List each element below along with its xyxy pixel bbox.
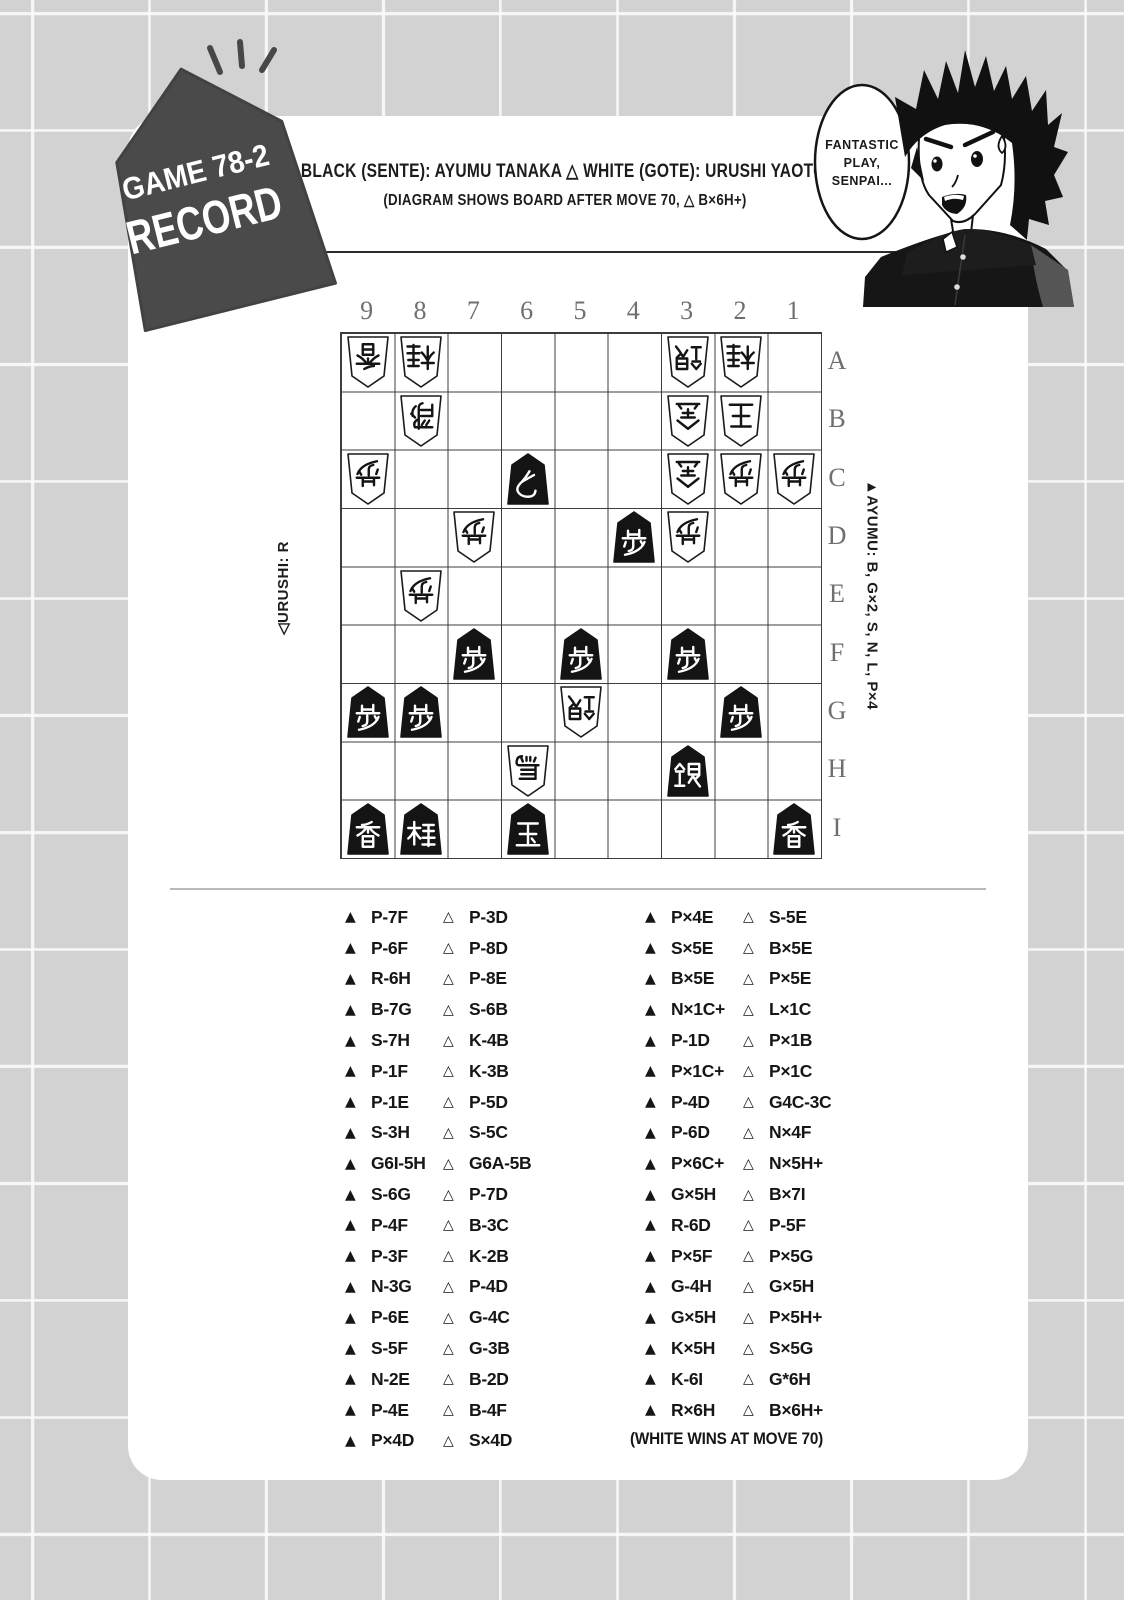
white-triangle-icon: △ bbox=[443, 1094, 469, 1110]
black-move: S-6G bbox=[371, 1184, 443, 1205]
black-triangle-icon: ▲ bbox=[645, 1125, 671, 1141]
white-triangle-icon: △ bbox=[743, 940, 769, 956]
black-triangle-icon: ▲ bbox=[645, 1094, 671, 1110]
left-eye bbox=[932, 157, 943, 172]
black-move: P-4D bbox=[671, 1092, 743, 1113]
piece-black-lance-9I bbox=[344, 802, 392, 856]
piece-white-pawn-2C bbox=[717, 452, 765, 506]
white-move: P×5H+ bbox=[769, 1307, 822, 1328]
white-move: K-3B bbox=[469, 1061, 509, 1082]
file-number-5: 5 bbox=[553, 296, 606, 326]
white-triangle-icon: △ bbox=[743, 1310, 769, 1326]
white-triangle-icon: △ bbox=[743, 1279, 769, 1295]
move-pair-row: ▲K×5H△S×5G bbox=[645, 1333, 831, 1364]
white-move: L×1C bbox=[769, 999, 811, 1020]
black-move: G×5H bbox=[671, 1307, 743, 1328]
move-pair-row: ▲G×5H△P×5H+ bbox=[645, 1302, 831, 1333]
piece-white-pawn-3D bbox=[664, 510, 712, 564]
manga-character-panel: FANTASTIC PLAY, SENPAI... bbox=[805, 25, 1110, 310]
white-move: G-3B bbox=[469, 1338, 510, 1359]
black-triangle-icon: ▲ bbox=[645, 1063, 671, 1079]
white-triangle-icon: △ bbox=[443, 1433, 469, 1449]
white-triangle-icon: △ bbox=[743, 1371, 769, 1387]
black-move: S-7H bbox=[371, 1030, 443, 1051]
black-move: P×6C+ bbox=[671, 1153, 743, 1174]
black-move: N-2E bbox=[371, 1369, 443, 1390]
move-pair-row: ▲N×1C+△L×1C bbox=[645, 994, 831, 1025]
black-triangle-icon: ▲ bbox=[345, 1279, 371, 1295]
white-triangle-icon: △ bbox=[443, 1310, 469, 1326]
black-pieces-in-hand-label: ▲AYUMU: B, G×2, S, N, L, P×4 bbox=[864, 480, 881, 710]
black-triangle-icon: ▲ bbox=[645, 1156, 671, 1172]
white-move: P×5G bbox=[769, 1246, 813, 1267]
black-triangle-icon: ▲ bbox=[645, 1248, 671, 1264]
move-pair-row: ▲P-1F△K-3B bbox=[345, 1056, 531, 1087]
move-pair-row: ▲K-6I△G*6H bbox=[645, 1364, 831, 1395]
black-triangle-icon: ▲ bbox=[345, 940, 371, 956]
white-move: P-8E bbox=[469, 968, 507, 989]
white-triangle-icon: △ bbox=[743, 1402, 769, 1418]
black-triangle-icon: ▲ bbox=[645, 909, 671, 925]
white-move: P-4D bbox=[469, 1276, 508, 1297]
black-move: S×5E bbox=[671, 938, 743, 959]
move-pair-row: ▲P×4E△S-5E bbox=[645, 902, 831, 933]
white-pieces-in-hand-label: ◁URUSHI: R bbox=[274, 541, 292, 635]
move-pair-row: ▲N-2E△B-2D bbox=[345, 1364, 531, 1395]
white-move: S×4D bbox=[469, 1430, 512, 1451]
black-move: K-6I bbox=[671, 1369, 743, 1390]
white-triangle-icon: △ bbox=[443, 940, 469, 956]
white-triangle-icon: △ bbox=[443, 1063, 469, 1079]
white-move: G-4C bbox=[469, 1307, 510, 1328]
move-pair-row: ▲P-3F△K-2B bbox=[345, 1241, 531, 1272]
move-pair-row: ▲P-4E△B-4F bbox=[345, 1395, 531, 1426]
move-pair-row: ▲P-1D△P×1B bbox=[645, 1025, 831, 1056]
white-move: P-7D bbox=[469, 1184, 508, 1205]
black-triangle-icon: ▲ bbox=[345, 1063, 371, 1079]
white-triangle-icon: △ bbox=[443, 1156, 469, 1172]
game-record-tag: GAME 78-2 RECORD bbox=[70, 30, 360, 350]
piece-black-pawn-5F bbox=[557, 627, 605, 681]
white-triangle-icon: △ bbox=[743, 1094, 769, 1110]
move-pair-row: ▲P×4D△S×4D bbox=[345, 1426, 531, 1457]
white-triangle-icon: △ bbox=[743, 1217, 769, 1233]
white-move: P×1B bbox=[769, 1030, 812, 1051]
piece-white-king-2B bbox=[717, 394, 765, 448]
rank-letter-B: B bbox=[824, 390, 850, 448]
black-move: K×5H bbox=[671, 1338, 743, 1359]
white-move: B×7I bbox=[769, 1184, 805, 1205]
piece-black-pawn-3F bbox=[664, 627, 712, 681]
black-triangle-icon: ▲ bbox=[345, 1156, 371, 1172]
black-triangle-icon: ▲ bbox=[345, 1310, 371, 1326]
white-triangle-icon: △ bbox=[743, 971, 769, 987]
black-move: G-4H bbox=[671, 1276, 743, 1297]
white-move: P-5F bbox=[769, 1215, 806, 1236]
black-move: P×4E bbox=[671, 907, 743, 928]
black-triangle-icon: ▲ bbox=[345, 909, 371, 925]
white-triangle-icon: △ bbox=[743, 909, 769, 925]
piece-white-silver-5G bbox=[557, 685, 605, 739]
uniform-button bbox=[960, 254, 966, 260]
move-pair-row: ▲R×6H△B×6H+ bbox=[645, 1395, 831, 1426]
move-pair-row: ▲P-6F△P-8D bbox=[345, 933, 531, 964]
white-triangle-icon: △ bbox=[443, 1402, 469, 1418]
white-triangle-icon: △ bbox=[443, 1187, 469, 1203]
emphasis-marks bbox=[210, 42, 274, 72]
piece-black-pawn-4D bbox=[610, 510, 658, 564]
white-triangle-icon: △ bbox=[743, 1033, 769, 1049]
black-move: P×4D bbox=[371, 1430, 443, 1451]
white-triangle-icon: △ bbox=[443, 909, 469, 925]
move-pair-row: ▲S×5E△B×5E bbox=[645, 933, 831, 964]
black-triangle-icon: ▲ bbox=[345, 1033, 371, 1049]
move-pair-row: ▲P-4D△G4C-3C bbox=[645, 1087, 831, 1118]
black-triangle-icon: ▲ bbox=[645, 1217, 671, 1233]
move-pair-row: ▲P-6E△G-4C bbox=[345, 1302, 531, 1333]
black-move: P×1C+ bbox=[671, 1061, 743, 1082]
white-move: G*6H bbox=[769, 1369, 811, 1390]
white-move: S-5C bbox=[469, 1122, 508, 1143]
file-number-8: 8 bbox=[393, 296, 446, 326]
piece-white-promoted-bishop-6H bbox=[504, 744, 552, 798]
black-triangle-icon: ▲ bbox=[645, 971, 671, 987]
white-triangle-icon: △ bbox=[743, 1341, 769, 1357]
file-number-7: 7 bbox=[447, 296, 500, 326]
move-pair-row: ▲S-3H△S-5C bbox=[345, 1118, 531, 1149]
white-triangle-icon: △ bbox=[743, 1248, 769, 1264]
right-eye bbox=[971, 151, 983, 167]
black-triangle-icon: ▲ bbox=[345, 1125, 371, 1141]
black-move: P-4F bbox=[371, 1215, 443, 1236]
move-list-column-2: ▲P×4E△S-5E▲S×5E△B×5E▲B×5E△P×5E▲N×1C+△L×1… bbox=[645, 902, 831, 1426]
white-triangle-icon: △ bbox=[443, 1125, 469, 1141]
move-pair-row: ▲P-1E△P-5D bbox=[345, 1087, 531, 1118]
piece-black-king-6I bbox=[504, 802, 552, 856]
bubble-line3: SENPAI... bbox=[832, 174, 893, 188]
white-move: P×1C bbox=[769, 1061, 812, 1082]
piece-white-pawn-9C bbox=[344, 452, 392, 506]
black-triangle-icon: ▲ bbox=[645, 1002, 671, 1018]
piece-black-tokin-6C bbox=[504, 452, 552, 506]
move-pair-row: ▲S-7H△K-4B bbox=[345, 1025, 531, 1056]
black-triangle-icon: ▲ bbox=[345, 1341, 371, 1357]
rank-letter-G: G bbox=[824, 682, 850, 740]
white-move: S-6B bbox=[469, 999, 508, 1020]
move-pair-row: ▲P-7F△P-3D bbox=[345, 902, 531, 933]
move-pair-row: ▲N-3G△P-4D bbox=[345, 1272, 531, 1303]
black-move: P-4E bbox=[371, 1400, 443, 1421]
file-number-4: 4 bbox=[607, 296, 660, 326]
black-move: R×6H bbox=[671, 1400, 743, 1421]
rank-letter-C: C bbox=[824, 449, 850, 507]
move-pair-row: ▲S-5F△G-3B bbox=[345, 1333, 531, 1364]
black-triangle-icon: ▲ bbox=[645, 1187, 671, 1203]
movelist-divider bbox=[170, 888, 986, 890]
piece-white-rook-8B bbox=[397, 394, 445, 448]
white-move: B-4F bbox=[469, 1400, 507, 1421]
move-pair-row: ▲G-4H△G×5H bbox=[645, 1272, 831, 1303]
white-triangle-icon: △ bbox=[443, 1033, 469, 1049]
white-move: P-8D bbox=[469, 938, 508, 959]
black-triangle-icon: ▲ bbox=[345, 1094, 371, 1110]
move-pair-row: ▲P×5F△P×5G bbox=[645, 1241, 831, 1272]
black-triangle-icon: ▲ bbox=[645, 1402, 671, 1418]
white-triangle-icon: △ bbox=[443, 971, 469, 987]
piece-black-knight-8I bbox=[397, 802, 445, 856]
piece-white-pawn-7D bbox=[450, 510, 498, 564]
black-move: P-1F bbox=[371, 1061, 443, 1082]
white-move: N×4F bbox=[769, 1122, 811, 1143]
board-file-numbers: 987654321 bbox=[340, 296, 820, 326]
move-pair-row: ▲G6I-5H△G6A-5B bbox=[345, 1148, 531, 1179]
black-triangle-icon: ▲ bbox=[345, 1402, 371, 1418]
piece-white-pawn-1C bbox=[770, 452, 818, 506]
white-move: G4C-3C bbox=[769, 1092, 831, 1113]
board-rank-letters: ABCDEFGHI bbox=[824, 332, 850, 857]
white-triangle-icon: △ bbox=[743, 1156, 769, 1172]
black-move: R-6D bbox=[671, 1215, 743, 1236]
black-triangle-icon: ▲ bbox=[345, 1187, 371, 1203]
piece-black-pawn-7F bbox=[450, 627, 498, 681]
black-move: G6I-5H bbox=[371, 1153, 443, 1174]
players-line: ▲ BLACK (SENTE): AYUMU TANAKA △ WHITE (G… bbox=[281, 160, 850, 183]
move-pair-row: ▲B×5E△P×5E bbox=[645, 964, 831, 995]
black-move: B-7G bbox=[371, 999, 443, 1020]
white-move: K-2B bbox=[469, 1246, 509, 1267]
black-triangle-icon: ▲ bbox=[645, 1279, 671, 1295]
white-triangle-icon: △ bbox=[443, 1248, 469, 1264]
move-pair-row: ▲P-4F△B-3C bbox=[345, 1210, 531, 1241]
white-move: S×5G bbox=[769, 1338, 813, 1359]
white-move: B×6H+ bbox=[769, 1400, 823, 1421]
uniform-button bbox=[954, 284, 960, 290]
white-triangle-icon: △ bbox=[443, 1279, 469, 1295]
file-number-2: 2 bbox=[713, 296, 766, 326]
black-move: P-6E bbox=[371, 1307, 443, 1328]
black-move: R-6H bbox=[371, 968, 443, 989]
move-pair-row: ▲G×5H△B×7I bbox=[645, 1179, 831, 1210]
piece-white-gold-3B bbox=[664, 394, 712, 448]
black-move: P-7F bbox=[371, 907, 443, 928]
black-triangle-icon: ▲ bbox=[345, 1433, 371, 1449]
black-triangle-icon: ▲ bbox=[645, 1033, 671, 1049]
black-triangle-icon: ▲ bbox=[345, 971, 371, 987]
move-pair-row: ▲P×6C+△N×5H+ bbox=[645, 1148, 831, 1179]
move-pair-row: ▲P-6D△N×4F bbox=[645, 1118, 831, 1149]
file-number-3: 3 bbox=[660, 296, 713, 326]
white-triangle-icon: △ bbox=[443, 1217, 469, 1233]
file-number-6: 6 bbox=[500, 296, 553, 326]
white-move: N×5H+ bbox=[769, 1153, 823, 1174]
move-pair-row: ▲B-7G△S-6B bbox=[345, 994, 531, 1025]
white-triangle-icon: △ bbox=[443, 1371, 469, 1387]
black-triangle-icon: ▲ bbox=[345, 1002, 371, 1018]
piece-white-gold-3C bbox=[664, 452, 712, 506]
black-triangle-icon: ▲ bbox=[645, 940, 671, 956]
black-move: S-3H bbox=[371, 1122, 443, 1143]
black-triangle-icon: ▲ bbox=[645, 1310, 671, 1326]
move-list-column-1: ▲P-7F△P-3D▲P-6F△P-8D▲R-6H△P-8E▲B-7G△S-6B… bbox=[345, 902, 531, 1456]
bubble-line2: PLAY, bbox=[844, 156, 881, 170]
rank-letter-D: D bbox=[824, 507, 850, 565]
white-move: P-3D bbox=[469, 907, 508, 928]
black-move: P-1E bbox=[371, 1092, 443, 1113]
piece-white-pawn-8E bbox=[397, 569, 445, 623]
rank-letter-A: A bbox=[824, 332, 850, 390]
white-move: P×5E bbox=[769, 968, 811, 989]
white-triangle-icon: △ bbox=[743, 1125, 769, 1141]
piece-white-silver-3A bbox=[664, 335, 712, 389]
white-move: G6A-5B bbox=[469, 1153, 531, 1174]
white-triangle-icon: △ bbox=[443, 1341, 469, 1357]
rank-letter-E: E bbox=[824, 565, 850, 623]
sweat-drop-icon bbox=[999, 136, 1006, 153]
white-triangle-icon: △ bbox=[443, 1002, 469, 1018]
black-move: P-3F bbox=[371, 1246, 443, 1267]
white-move: P-5D bbox=[469, 1092, 508, 1113]
black-triangle-icon: ▲ bbox=[645, 1371, 671, 1387]
white-triangle-icon: △ bbox=[743, 1063, 769, 1079]
diagram-note: (DIAGRAM SHOWS BOARD AFTER MOVE 70, △ B×… bbox=[383, 191, 746, 210]
white-triangle-icon: △ bbox=[743, 1187, 769, 1203]
white-triangle-icon: △ bbox=[743, 1002, 769, 1018]
black-triangle-icon: ▲ bbox=[345, 1217, 371, 1233]
white-move: B×5E bbox=[769, 938, 812, 959]
move-pair-row: ▲P×1C+△P×1C bbox=[645, 1056, 831, 1087]
move-pair-row: ▲S-6G△P-7D bbox=[345, 1179, 531, 1210]
black-move: N×1C+ bbox=[671, 999, 743, 1020]
bubble-line1: FANTASTIC bbox=[825, 138, 899, 152]
black-move: P-6F bbox=[371, 938, 443, 959]
move-pair-row: ▲R-6D△P-5F bbox=[645, 1210, 831, 1241]
black-move: B×5E bbox=[671, 968, 743, 989]
rank-letter-F: F bbox=[824, 624, 850, 682]
white-move: K-4B bbox=[469, 1030, 509, 1051]
manga-shogi-record-page: ▲ BLACK (SENTE): AYUMU TANAKA △ WHITE (G… bbox=[0, 0, 1124, 1600]
black-move: P-1D bbox=[671, 1030, 743, 1051]
rank-letter-H: H bbox=[824, 740, 850, 798]
black-triangle-icon: ▲ bbox=[645, 1341, 671, 1357]
black-move: P-6D bbox=[671, 1122, 743, 1143]
piece-white-knight-2A bbox=[717, 335, 765, 389]
black-triangle-icon: ▲ bbox=[345, 1248, 371, 1264]
game-result: (WHITE WINS AT MOVE 70) bbox=[630, 1429, 823, 1449]
move-pair-row: ▲R-6H△P-8E bbox=[345, 964, 531, 995]
white-move: S-5E bbox=[769, 907, 807, 928]
piece-black-pawn-2G bbox=[717, 685, 765, 739]
white-move: B-2D bbox=[469, 1369, 509, 1390]
piece-black-pawn-9G bbox=[344, 685, 392, 739]
piece-black-lance-1I bbox=[770, 802, 818, 856]
black-move: S-5F bbox=[371, 1338, 443, 1359]
white-move: G×5H bbox=[769, 1276, 814, 1297]
black-move: P×5F bbox=[671, 1246, 743, 1267]
black-move: N-3G bbox=[371, 1276, 443, 1297]
black-move: G×5H bbox=[671, 1184, 743, 1205]
black-triangle-icon: ▲ bbox=[345, 1371, 371, 1387]
rank-letter-I: I bbox=[824, 799, 850, 857]
piece-white-knight-8A bbox=[397, 335, 445, 389]
white-move: B-3C bbox=[469, 1215, 509, 1236]
piece-black-silver-3H bbox=[664, 744, 712, 798]
shogi-board bbox=[340, 332, 822, 859]
piece-black-pawn-8G bbox=[397, 685, 445, 739]
